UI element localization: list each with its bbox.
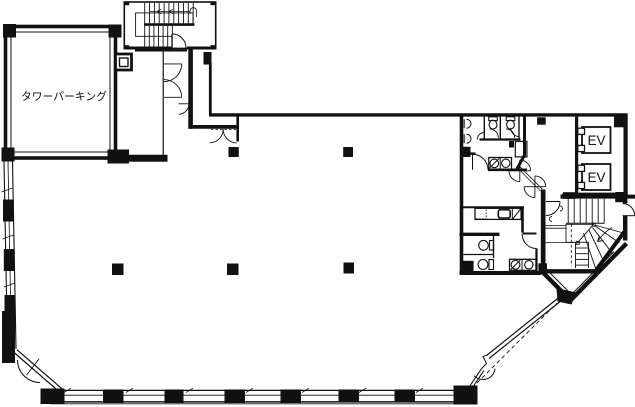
svg-text:EV: EV (587, 170, 605, 185)
svg-text:タワーパーキング: タワーパーキング (21, 89, 107, 103)
svg-text:EV: EV (587, 133, 605, 148)
